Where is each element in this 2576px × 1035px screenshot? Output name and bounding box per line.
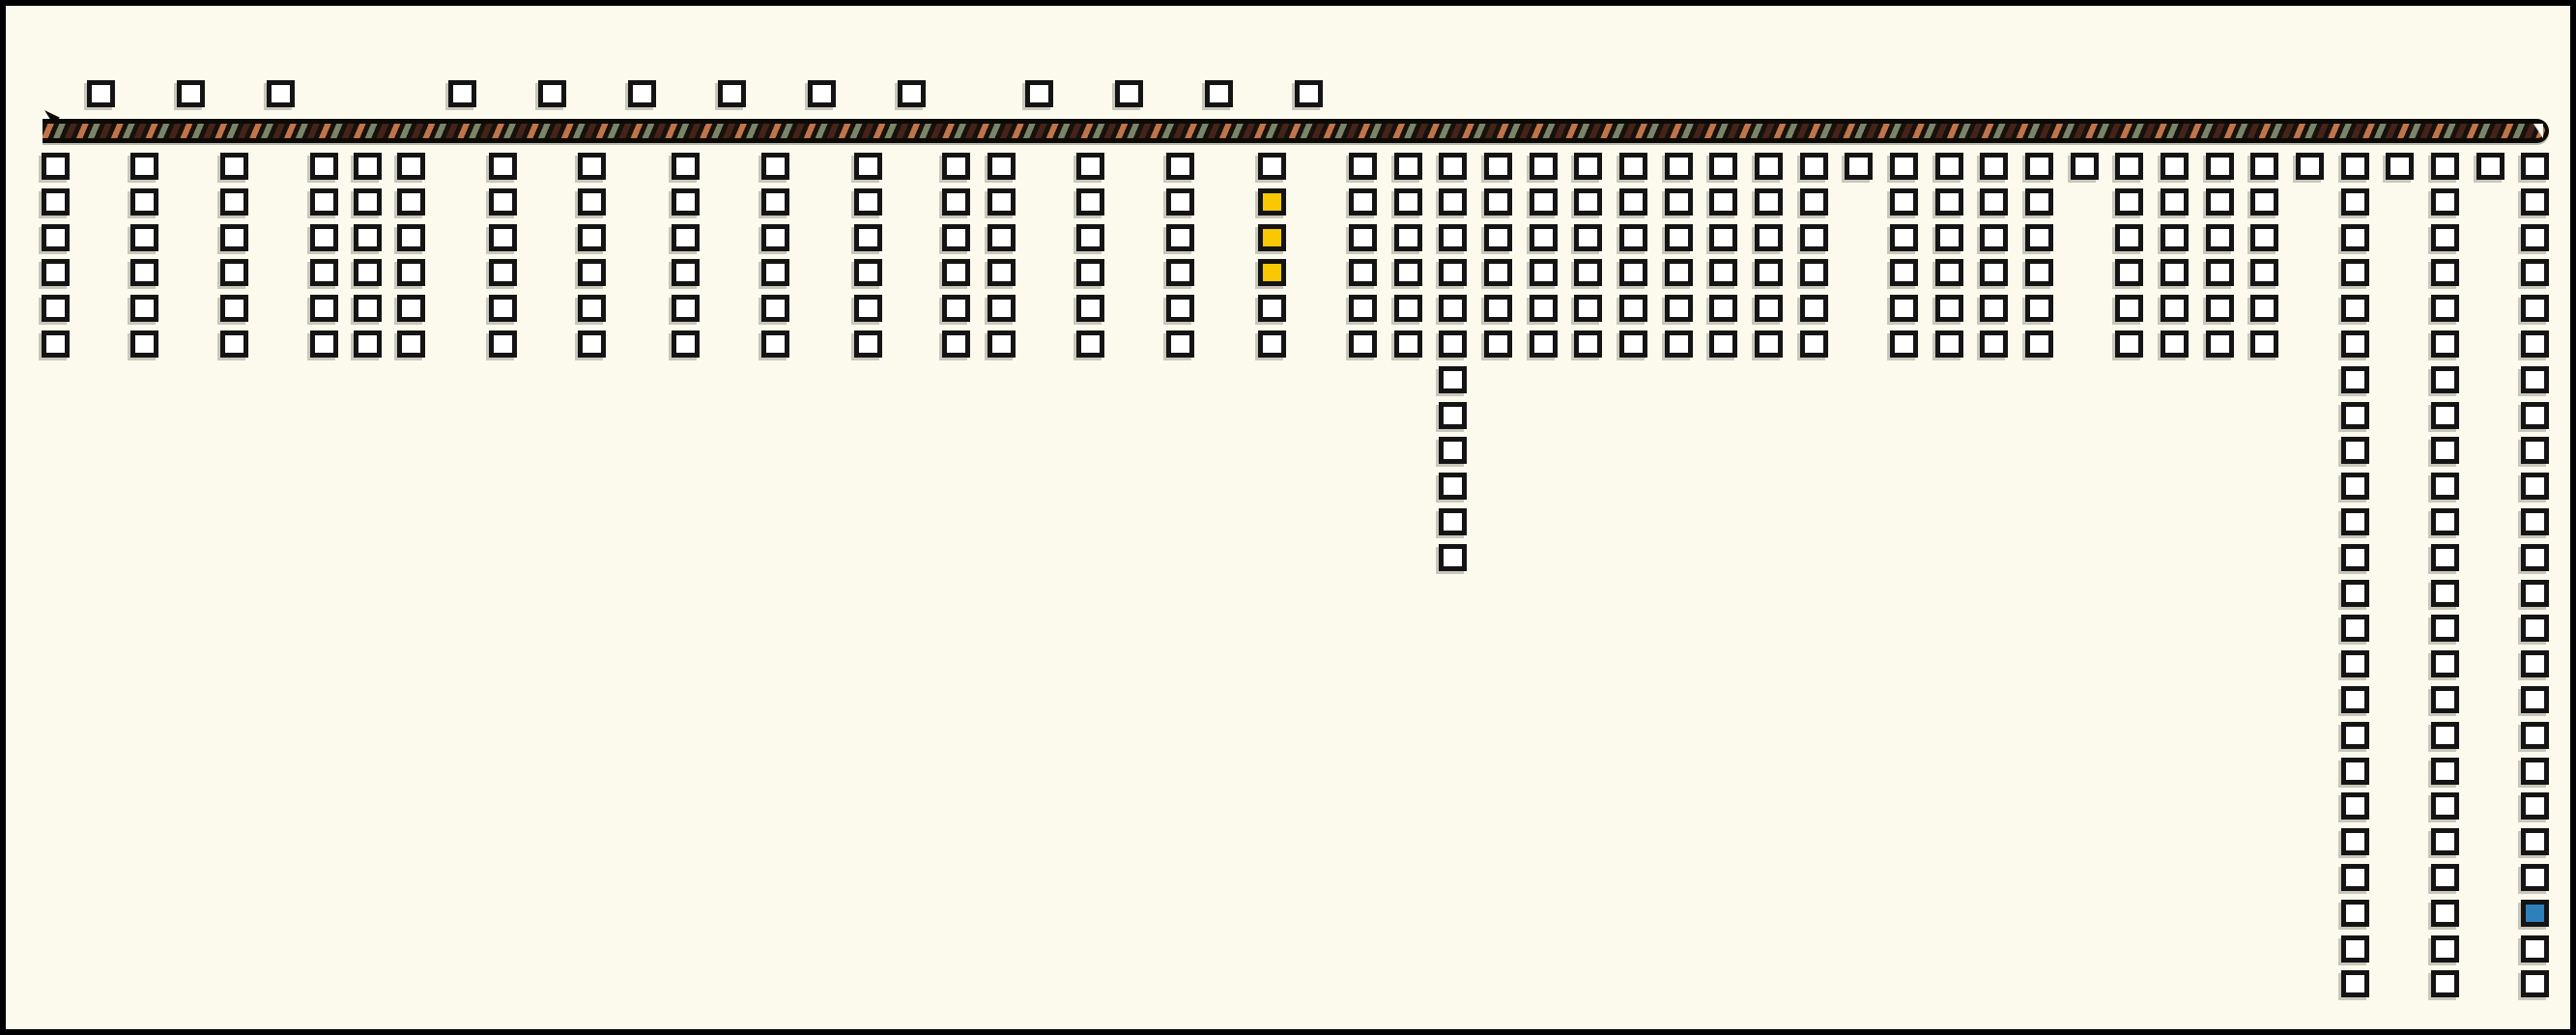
plot-square — [987, 331, 1016, 358]
plot-square — [42, 295, 70, 322]
plot-square — [1755, 295, 1783, 322]
plot-square — [354, 224, 382, 251]
plot-square — [2341, 153, 2369, 180]
plot-square — [2431, 473, 2459, 500]
plot-square-blue-highlight — [2521, 900, 2549, 927]
plot-square — [854, 153, 882, 180]
plot-square — [2521, 259, 2549, 286]
plot-square — [1665, 331, 1693, 358]
plot-square — [1394, 224, 1422, 251]
plot-square — [1258, 295, 1286, 322]
plot-square — [1665, 153, 1693, 180]
plot-square — [2341, 722, 2369, 749]
plot-square — [1076, 331, 1104, 358]
plot-square — [1076, 259, 1104, 286]
plot-square — [1665, 224, 1693, 251]
plot-square — [2431, 686, 2459, 713]
plot-square — [2250, 188, 2278, 216]
plot-square — [2431, 900, 2459, 927]
plot-square — [672, 331, 700, 358]
diagram-canvas — [0, 0, 2576, 1035]
plot-square — [761, 259, 789, 286]
plot-square — [489, 331, 517, 358]
plot-square — [220, 259, 248, 286]
plot-square — [489, 188, 517, 216]
plot-square — [1574, 224, 1602, 251]
plot-square — [2431, 331, 2459, 358]
plot-square — [489, 259, 517, 286]
plot-square — [2206, 295, 2234, 322]
plot-square — [1665, 295, 1693, 322]
plot-square — [1484, 259, 1512, 286]
plot-square — [1484, 331, 1512, 358]
plot-square — [489, 295, 517, 322]
plot-square — [1530, 295, 1558, 322]
plot-square — [397, 224, 425, 251]
plot-square — [1574, 295, 1602, 322]
plot-square — [2431, 650, 2459, 677]
plot-square — [1484, 188, 1512, 216]
plot-square — [2521, 437, 2549, 464]
plot-square — [1800, 259, 1828, 286]
plot-square — [2341, 188, 2369, 216]
plot-square — [2386, 153, 2414, 180]
plot-square — [2521, 508, 2549, 535]
plot-square — [761, 331, 789, 358]
plot-square — [1484, 224, 1512, 251]
plot-square — [761, 295, 789, 322]
plot-square — [1935, 153, 1963, 180]
plot-square — [578, 188, 606, 216]
plot-square — [42, 224, 70, 251]
plot-square — [1349, 259, 1377, 286]
plot-square — [1439, 473, 1467, 500]
plot-square — [1530, 224, 1558, 251]
plot-square — [220, 331, 248, 358]
plot-square — [354, 188, 382, 216]
plot-square — [1530, 259, 1558, 286]
plot-square — [2431, 615, 2459, 642]
plot-square — [2521, 686, 2549, 713]
plot-square — [2521, 970, 2549, 997]
plot-square — [854, 331, 882, 358]
plot-square — [854, 259, 882, 286]
plot-square — [220, 295, 248, 322]
plot-square — [1709, 331, 1737, 358]
plot-square — [1484, 153, 1512, 180]
plot-square — [942, 331, 970, 358]
plot-square — [2250, 295, 2278, 322]
plot-square — [2341, 970, 2369, 997]
plot-square — [1349, 188, 1377, 216]
plot-square — [942, 224, 970, 251]
plot-square-yellow-highlight — [1258, 259, 1286, 286]
plot-square — [1800, 295, 1828, 322]
plot-square — [2025, 188, 2053, 216]
plot-square — [397, 153, 425, 180]
plot-square — [1800, 153, 1828, 180]
plot-square — [578, 331, 606, 358]
plot-square — [2431, 366, 2459, 393]
plot-square — [1439, 544, 1467, 571]
plot-square — [130, 188, 158, 216]
plot-square — [42, 188, 70, 216]
plot-square — [2431, 224, 2459, 251]
column-grid-squares — [6, 6, 2570, 1029]
plot-square — [2431, 544, 2459, 571]
plot-square — [2431, 792, 2459, 819]
plot-square — [1258, 331, 1286, 358]
plot-square — [1709, 259, 1737, 286]
plot-square — [42, 259, 70, 286]
plot-square — [1619, 331, 1647, 358]
plot-square — [942, 153, 970, 180]
plot-square — [2115, 259, 2143, 286]
plot-square — [2341, 900, 2369, 927]
plot-square — [1890, 153, 1918, 180]
plot-square — [310, 331, 338, 358]
plot-square — [1076, 295, 1104, 322]
plot-square — [1394, 295, 1422, 322]
plot-square — [2431, 508, 2459, 535]
plot-square — [1349, 331, 1377, 358]
plot-square — [310, 295, 338, 322]
plot-square — [672, 224, 700, 251]
plot-square — [578, 224, 606, 251]
plot-square — [2161, 259, 2189, 286]
plot-square — [130, 259, 158, 286]
plot-square — [2431, 935, 2459, 963]
plot-square — [354, 259, 382, 286]
plot-square — [1394, 259, 1422, 286]
plot-square — [1709, 295, 1737, 322]
plot-square — [987, 188, 1016, 216]
plot-square — [2206, 331, 2234, 358]
plot-square — [2296, 153, 2324, 180]
plot-square — [2341, 650, 2369, 677]
plot-square — [1349, 153, 1377, 180]
plot-square — [2161, 331, 2189, 358]
plot-square — [2431, 828, 2459, 855]
plot-square — [1574, 153, 1602, 180]
plot-square — [2025, 224, 2053, 251]
plot-square — [2025, 295, 2053, 322]
plot-square — [1530, 153, 1558, 180]
plot-square — [42, 153, 70, 180]
plot-square — [1890, 331, 1918, 358]
plot-square — [1530, 188, 1558, 216]
plot-square — [2431, 153, 2459, 180]
plot-square — [1619, 295, 1647, 322]
plot-square — [2206, 259, 2234, 286]
plot-square — [1439, 188, 1467, 216]
plot-square — [942, 295, 970, 322]
plot-square — [2161, 188, 2189, 216]
plot-square — [2341, 544, 2369, 571]
plot-square — [672, 295, 700, 322]
plot-square — [1800, 224, 1828, 251]
plot-square — [1665, 259, 1693, 286]
plot-square — [2521, 935, 2549, 963]
plot-square — [1800, 188, 1828, 216]
plot-square — [2431, 402, 2459, 429]
plot-square — [578, 153, 606, 180]
plot-square — [2521, 295, 2549, 322]
plot-square — [1890, 259, 1918, 286]
plot-square — [354, 153, 382, 180]
plot-square — [2431, 758, 2459, 785]
plot-square — [1166, 224, 1194, 251]
plot-square — [2115, 295, 2143, 322]
plot-square — [2521, 828, 2549, 855]
plot-square — [1935, 331, 1963, 358]
plot-square — [1709, 188, 1737, 216]
plot-square — [1439, 366, 1467, 393]
plot-square — [2341, 437, 2369, 464]
plot-square — [1709, 224, 1737, 251]
plot-square — [220, 188, 248, 216]
plot-square — [1665, 188, 1693, 216]
plot-square — [2521, 580, 2549, 607]
plot-square — [1755, 224, 1783, 251]
plot-square — [1166, 153, 1194, 180]
plot-square — [2341, 295, 2369, 322]
plot-square — [2071, 153, 2099, 180]
plot-square — [1574, 259, 1602, 286]
plot-square — [310, 188, 338, 216]
plot-square — [854, 295, 882, 322]
plot-square — [1258, 153, 1286, 180]
plot-square — [1935, 295, 1963, 322]
plot-square — [2025, 259, 2053, 286]
plot-square — [2206, 224, 2234, 251]
plot-square — [2341, 792, 2369, 819]
plot-square — [2521, 722, 2549, 749]
plot-square — [761, 224, 789, 251]
plot-square — [2431, 259, 2459, 286]
plot-square-yellow-highlight — [1258, 188, 1286, 216]
plot-square — [2431, 295, 2459, 322]
plot-square — [1394, 331, 1422, 358]
plot-square — [2521, 153, 2549, 180]
plot-square — [2431, 864, 2459, 891]
plot-square — [130, 153, 158, 180]
plot-square — [2341, 473, 2369, 500]
plot-square — [397, 331, 425, 358]
plot-square — [2341, 402, 2369, 429]
plot-square — [130, 331, 158, 358]
plot-square — [1166, 331, 1194, 358]
plot-square — [2521, 758, 2549, 785]
plot-square — [1439, 295, 1467, 322]
plot-square — [310, 224, 338, 251]
plot-square — [2250, 153, 2278, 180]
plot-square — [2341, 935, 2369, 963]
plot-square — [672, 153, 700, 180]
plot-square — [2161, 224, 2189, 251]
plot-square — [130, 224, 158, 251]
plot-square — [761, 153, 789, 180]
plot-square — [1980, 224, 2008, 251]
plot-square — [1166, 295, 1194, 322]
plot-square — [2025, 331, 2053, 358]
plot-square — [1574, 331, 1602, 358]
plot-square — [987, 259, 1016, 286]
plot-square — [2521, 864, 2549, 891]
plot-square — [2115, 331, 2143, 358]
plot-square — [1619, 153, 1647, 180]
plot-square-yellow-highlight — [1258, 224, 1286, 251]
plot-square — [1890, 224, 1918, 251]
plot-square — [1166, 259, 1194, 286]
plot-square — [1935, 224, 1963, 251]
plot-square — [672, 188, 700, 216]
plot-square — [942, 259, 970, 286]
plot-square — [2431, 188, 2459, 216]
plot-square — [2341, 686, 2369, 713]
plot-square — [1890, 295, 1918, 322]
plot-square — [2115, 188, 2143, 216]
plot-square — [42, 331, 70, 358]
plot-square — [1755, 331, 1783, 358]
plot-square — [1439, 224, 1467, 251]
plot-square — [1439, 402, 1467, 429]
plot-square — [2161, 295, 2189, 322]
plot-square — [1484, 295, 1512, 322]
plot-square — [2521, 615, 2549, 642]
plot-square — [1755, 188, 1783, 216]
plot-square — [2250, 331, 2278, 358]
plot-square — [2025, 153, 2053, 180]
plot-square — [2341, 224, 2369, 251]
plot-square — [2521, 224, 2549, 251]
plot-square — [2521, 792, 2549, 819]
plot-square — [1800, 331, 1828, 358]
plot-square — [1166, 188, 1194, 216]
plot-square — [354, 295, 382, 322]
plot-square — [310, 259, 338, 286]
plot-square — [2521, 544, 2549, 571]
plot-square — [130, 295, 158, 322]
plot-square — [2341, 580, 2369, 607]
plot-square — [672, 259, 700, 286]
plot-square — [2521, 473, 2549, 500]
plot-square — [397, 259, 425, 286]
plot-square — [397, 295, 425, 322]
plot-square — [854, 224, 882, 251]
plot-square — [2476, 153, 2504, 180]
plot-square — [578, 295, 606, 322]
plot-square — [2521, 188, 2549, 216]
plot-square — [1574, 188, 1602, 216]
plot-square — [1349, 295, 1377, 322]
plot-square — [2431, 970, 2459, 997]
plot-square — [354, 331, 382, 358]
plot-square — [987, 153, 1016, 180]
plot-square — [1349, 224, 1377, 251]
plot-square — [1439, 437, 1467, 464]
plot-square — [2431, 722, 2459, 749]
plot-square — [1755, 259, 1783, 286]
plot-square — [2521, 366, 2549, 393]
plot-square — [1439, 259, 1467, 286]
plot-square — [1890, 188, 1918, 216]
plot-square — [987, 224, 1016, 251]
plot-square — [1980, 295, 2008, 322]
plot-square — [2341, 758, 2369, 785]
plot-square — [1076, 153, 1104, 180]
plot-square — [2341, 331, 2369, 358]
plot-square — [2250, 259, 2278, 286]
plot-square — [1439, 508, 1467, 535]
plot-square — [2341, 508, 2369, 535]
plot-square — [761, 188, 789, 216]
plot-square — [1076, 224, 1104, 251]
plot-square — [310, 153, 338, 180]
plot-square — [2341, 259, 2369, 286]
plot-square — [2521, 650, 2549, 677]
plot-square — [489, 153, 517, 180]
plot-square — [2115, 153, 2143, 180]
plot-square — [854, 188, 882, 216]
plot-square — [1530, 331, 1558, 358]
plot-square — [1394, 188, 1422, 216]
plot-square — [2341, 366, 2369, 393]
plot-square — [2341, 615, 2369, 642]
plot-square — [1980, 188, 2008, 216]
plot-square — [1980, 259, 2008, 286]
plot-square — [2250, 224, 2278, 251]
plot-square — [1619, 259, 1647, 286]
plot-square — [1439, 153, 1467, 180]
plot-square — [2341, 864, 2369, 891]
plot-square — [2115, 224, 2143, 251]
plot-square — [1439, 331, 1467, 358]
plot-square — [2431, 437, 2459, 464]
plot-square — [1935, 259, 1963, 286]
plot-square — [1076, 188, 1104, 216]
plot-square — [2521, 331, 2549, 358]
plot-square — [1709, 153, 1737, 180]
plot-square — [1619, 188, 1647, 216]
plot-square — [1619, 224, 1647, 251]
plot-square — [2161, 153, 2189, 180]
plot-square — [2431, 580, 2459, 607]
plot-square — [1980, 331, 2008, 358]
plot-square — [397, 188, 425, 216]
plot-square — [1845, 153, 1873, 180]
plot-square — [220, 153, 248, 180]
plot-square — [220, 224, 248, 251]
plot-square — [1980, 153, 2008, 180]
plot-square — [2341, 828, 2369, 855]
plot-square — [1394, 153, 1422, 180]
plot-square — [578, 259, 606, 286]
plot-square — [2521, 402, 2549, 429]
plot-square — [1935, 188, 1963, 216]
plot-square — [987, 295, 1016, 322]
plot-square — [942, 188, 970, 216]
plot-square — [2206, 153, 2234, 180]
plot-square — [1755, 153, 1783, 180]
plot-square — [489, 224, 517, 251]
plot-square — [2206, 188, 2234, 216]
